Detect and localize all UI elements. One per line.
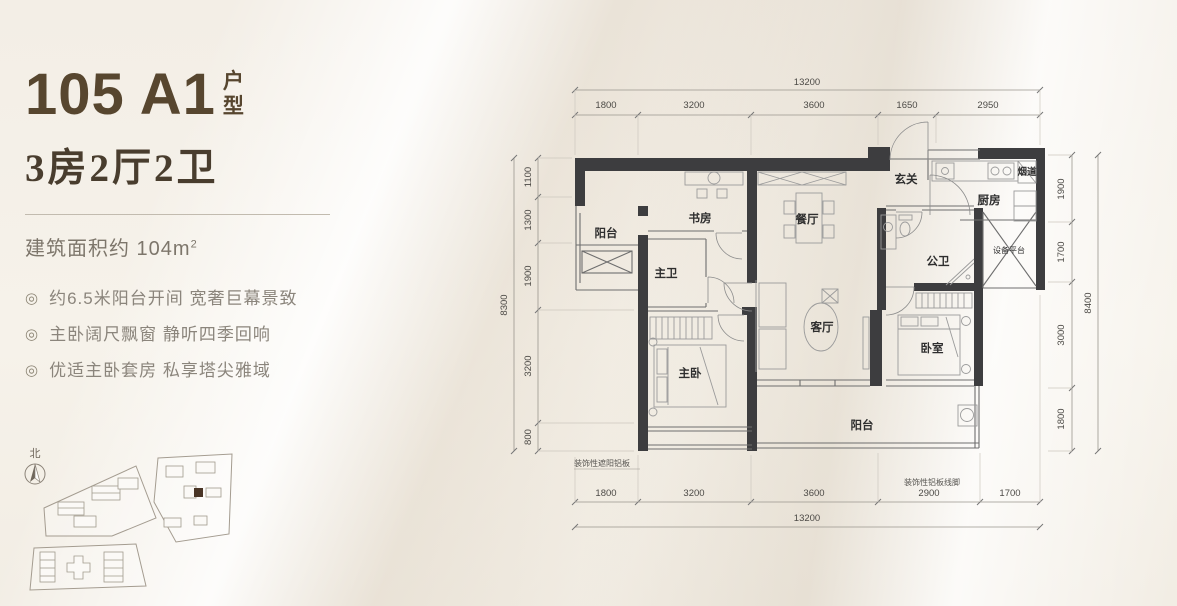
- selling-point-item: ◎ 约6.5米阳台开间 宽奢巨幕景致: [25, 288, 355, 309]
- dim-bottom-2: 3200: [683, 488, 704, 499]
- selling-point-item: ◎ 主卧阔尺飘窗 静听四季回响: [25, 324, 355, 345]
- room-label-foyer: 玄关: [895, 172, 918, 186]
- room-label-equipment: 设备平台: [993, 245, 1025, 255]
- unit-title-tag-char2: 型: [223, 94, 244, 119]
- room-label-living: 客厅: [810, 320, 834, 334]
- dim-top-5: 2950: [977, 100, 998, 111]
- north-indicator: 北: [25, 447, 45, 484]
- dim-right-1: 1900: [1056, 178, 1067, 199]
- note-left: 装饰性遮阳铝板: [574, 458, 630, 468]
- room-label-master-bed: 主卧: [679, 366, 702, 380]
- info-panel: 105 A1 户 型 3房2厅2卫 建筑面积约 104m2 ◎ 约6.5米阳台开…: [25, 66, 355, 396]
- room-label-balcony-top: 阳台: [595, 226, 618, 240]
- bullet-ring-icon: ◎: [25, 288, 39, 309]
- room-label-public-bath: 公卫: [927, 255, 950, 268]
- dim-right-total: 8400: [1083, 292, 1094, 313]
- material-notes: 装饰性遮阳铝板 装饰性铝板线脚: [574, 458, 960, 487]
- highlighted-building: [194, 488, 203, 497]
- dim-top-4: 1650: [896, 100, 917, 111]
- page: 105 A1 户 型 3房2厅2卫 建筑面积约 104m2 ◎ 约6.5米阳台开…: [0, 0, 1177, 606]
- area-exponent: 2: [191, 238, 198, 250]
- compass-needle-icon: [30, 464, 35, 482]
- room-label-master-bath: 主卫: [655, 266, 678, 280]
- room-label-dining: 餐厅: [795, 212, 819, 226]
- dim-top-total: 13200: [794, 77, 820, 88]
- selling-points: ◎ 约6.5米阳台开间 宽奢巨幕景致 ◎ 主卧阔尺飘窗 静听四季回响 ◎ 优适主…: [25, 288, 355, 381]
- dimension-labels: 13200 1800 3200 3600 1650 2950 1800 3200…: [500, 77, 1094, 524]
- note-right: 装饰性铝板线脚: [904, 477, 960, 487]
- dim-left-4: 3200: [523, 355, 534, 376]
- unit-title-tag-char1: 户: [223, 69, 244, 94]
- room-label-bedroom: 卧室: [921, 341, 944, 355]
- selling-point-text: 优适主卧套房 私享塔尖雅域: [49, 360, 271, 381]
- unit-title: 105 A1: [25, 66, 216, 124]
- layout-subtitle: 3房2厅2卫: [25, 137, 355, 193]
- dim-right-4: 1800: [1056, 408, 1067, 429]
- north-label: 北: [30, 447, 41, 460]
- area-text: 建筑面积约 104m2: [25, 232, 355, 261]
- selling-point-text: 约6.5米阳台开间 宽奢巨幕景致: [49, 288, 297, 309]
- bullet-ring-icon: ◎: [25, 360, 39, 381]
- dim-top-3: 3600: [803, 100, 824, 111]
- room-label-balcony-bottom: 阳台: [851, 418, 874, 432]
- bullet-ring-icon: ◎: [25, 324, 39, 345]
- dim-bottom-total: 13200: [794, 513, 820, 524]
- dim-top-1: 1800: [595, 100, 616, 111]
- dim-left-2: 1300: [523, 209, 534, 230]
- divider-line: [25, 214, 330, 215]
- room-label-flue: 烟道: [1017, 166, 1037, 178]
- area-value: 建筑面积约 104m: [25, 238, 191, 260]
- unit-title-tag: 户 型: [223, 69, 244, 119]
- selling-point-text: 主卧阔尺飘窗 静听四季回响: [49, 324, 271, 345]
- dim-right-2: 1700: [1056, 241, 1067, 262]
- floor-plan: 13200 1800 3200 3600 1650 2950 1800 3200…: [500, 55, 1120, 580]
- dim-top-2: 3200: [683, 100, 704, 111]
- selling-point-item: ◎ 优适主卧套房 私享塔尖雅域: [25, 360, 355, 381]
- dim-left-5: 800: [523, 429, 534, 445]
- dim-bottom-3: 3600: [803, 488, 824, 499]
- title-row: 105 A1 户 型: [25, 66, 355, 124]
- dim-left-total: 8300: [500, 294, 510, 315]
- dim-left-3: 1900: [523, 265, 534, 286]
- dim-bottom-5: 1700: [999, 488, 1020, 499]
- room-label-kitchen: 厨房: [978, 193, 1001, 207]
- dim-bottom-4: 2900: [918, 488, 939, 499]
- dim-bottom-1: 1800: [595, 488, 616, 499]
- dim-left-1: 1100: [523, 167, 534, 187]
- site-plan: 北: [8, 442, 238, 606]
- room-label-study: 书房: [689, 211, 712, 225]
- compass-needle-icon: [35, 464, 40, 482]
- dim-right-3: 3000: [1056, 324, 1067, 345]
